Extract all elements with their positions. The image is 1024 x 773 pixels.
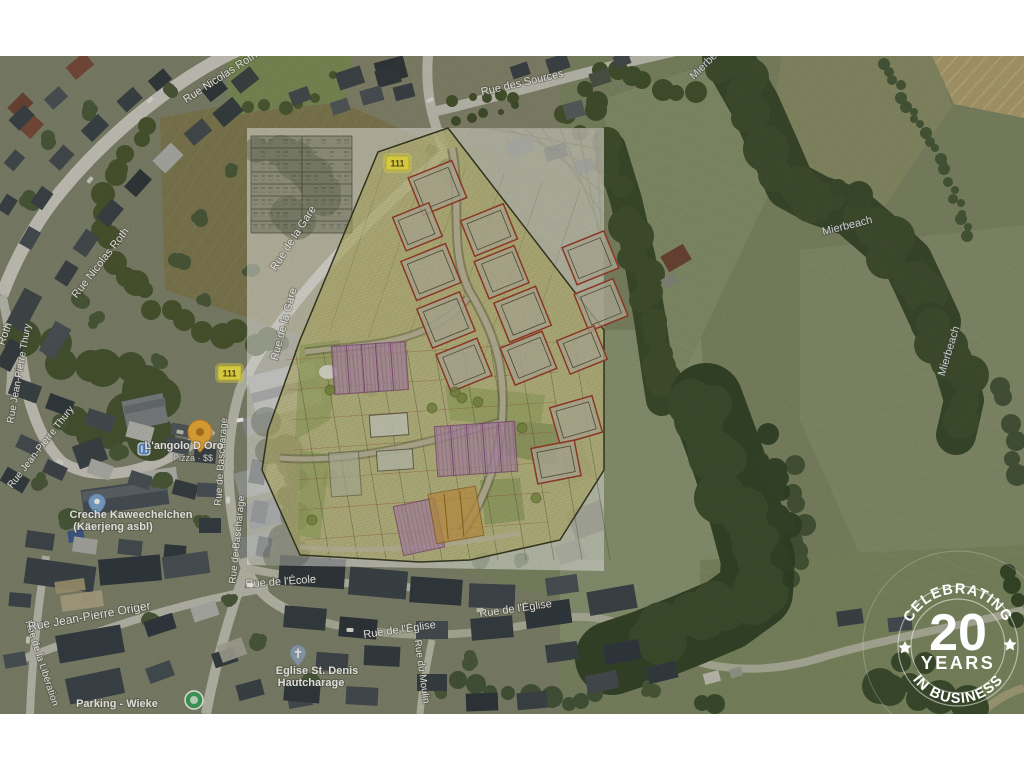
svg-text:YEARS: YEARS (921, 653, 996, 673)
